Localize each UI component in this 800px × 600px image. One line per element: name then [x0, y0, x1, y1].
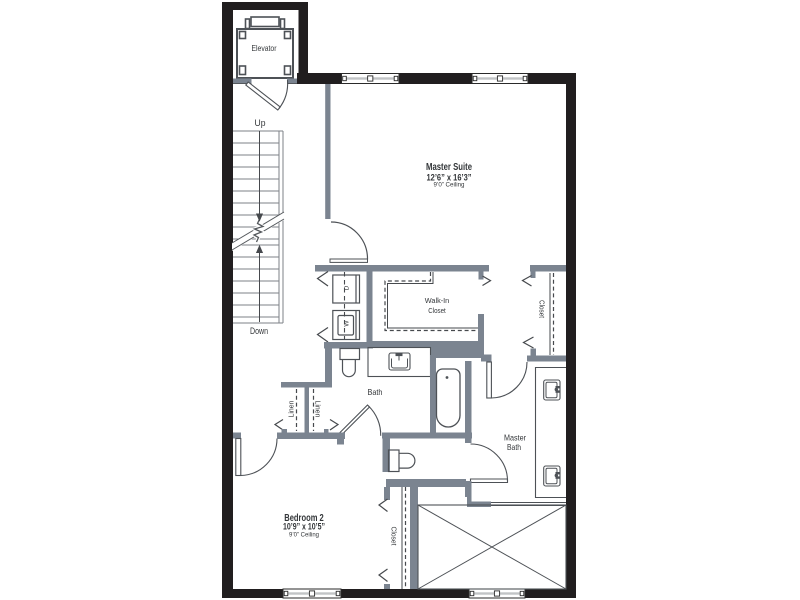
- svg-text:Down: Down: [250, 326, 268, 336]
- svg-text:Closet: Closet: [538, 300, 545, 318]
- svg-text:Linen: Linen: [314, 401, 321, 418]
- svg-text:Up: Up: [255, 118, 266, 128]
- svg-text:Master: Master: [504, 433, 526, 443]
- svg-text:Bath: Bath: [368, 387, 383, 397]
- svg-text:9’0” Ceiling: 9’0” Ceiling: [289, 532, 319, 539]
- svg-text:10’9” x 10’5”: 10’9” x 10’5”: [283, 522, 325, 532]
- svg-text:Master Suite: Master Suite: [426, 161, 472, 173]
- svg-text:Walk-In: Walk-In: [425, 296, 450, 305]
- svg-text:Bath: Bath: [507, 442, 521, 452]
- svg-text:Elevator: Elevator: [252, 43, 277, 53]
- svg-text:Linen: Linen: [289, 400, 296, 417]
- svg-text:9’0” Ceiling: 9’0” Ceiling: [434, 182, 465, 189]
- svg-text:Closet: Closet: [428, 306, 446, 315]
- svg-text:Closet: Closet: [390, 527, 397, 546]
